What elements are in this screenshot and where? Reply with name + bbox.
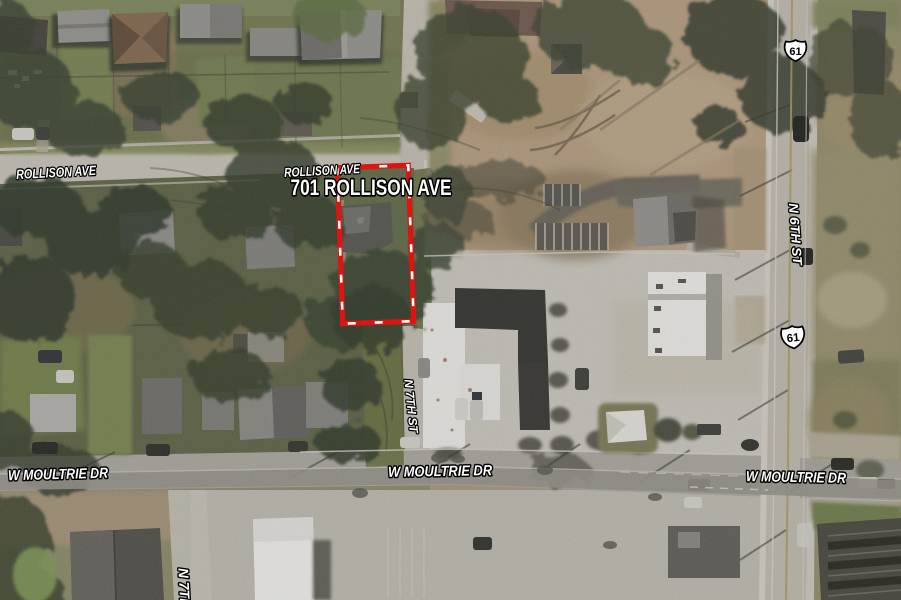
svg-text:61: 61	[786, 332, 801, 345]
svg-text:W MOULTRIE DR: W MOULTRIE DR	[388, 463, 493, 481]
svg-text:W MOULTRIE DR: W MOULTRIE DR	[746, 469, 847, 487]
svg-text:N 7TH ST: N 7TH ST	[175, 568, 194, 600]
svg-text:W MOULTRIE DR: W MOULTRIE DR	[8, 466, 109, 485]
svg-text:61: 61	[789, 46, 801, 58]
svg-text:701 ROLLISON AVE: 701 ROLLISON AVE	[291, 175, 452, 200]
